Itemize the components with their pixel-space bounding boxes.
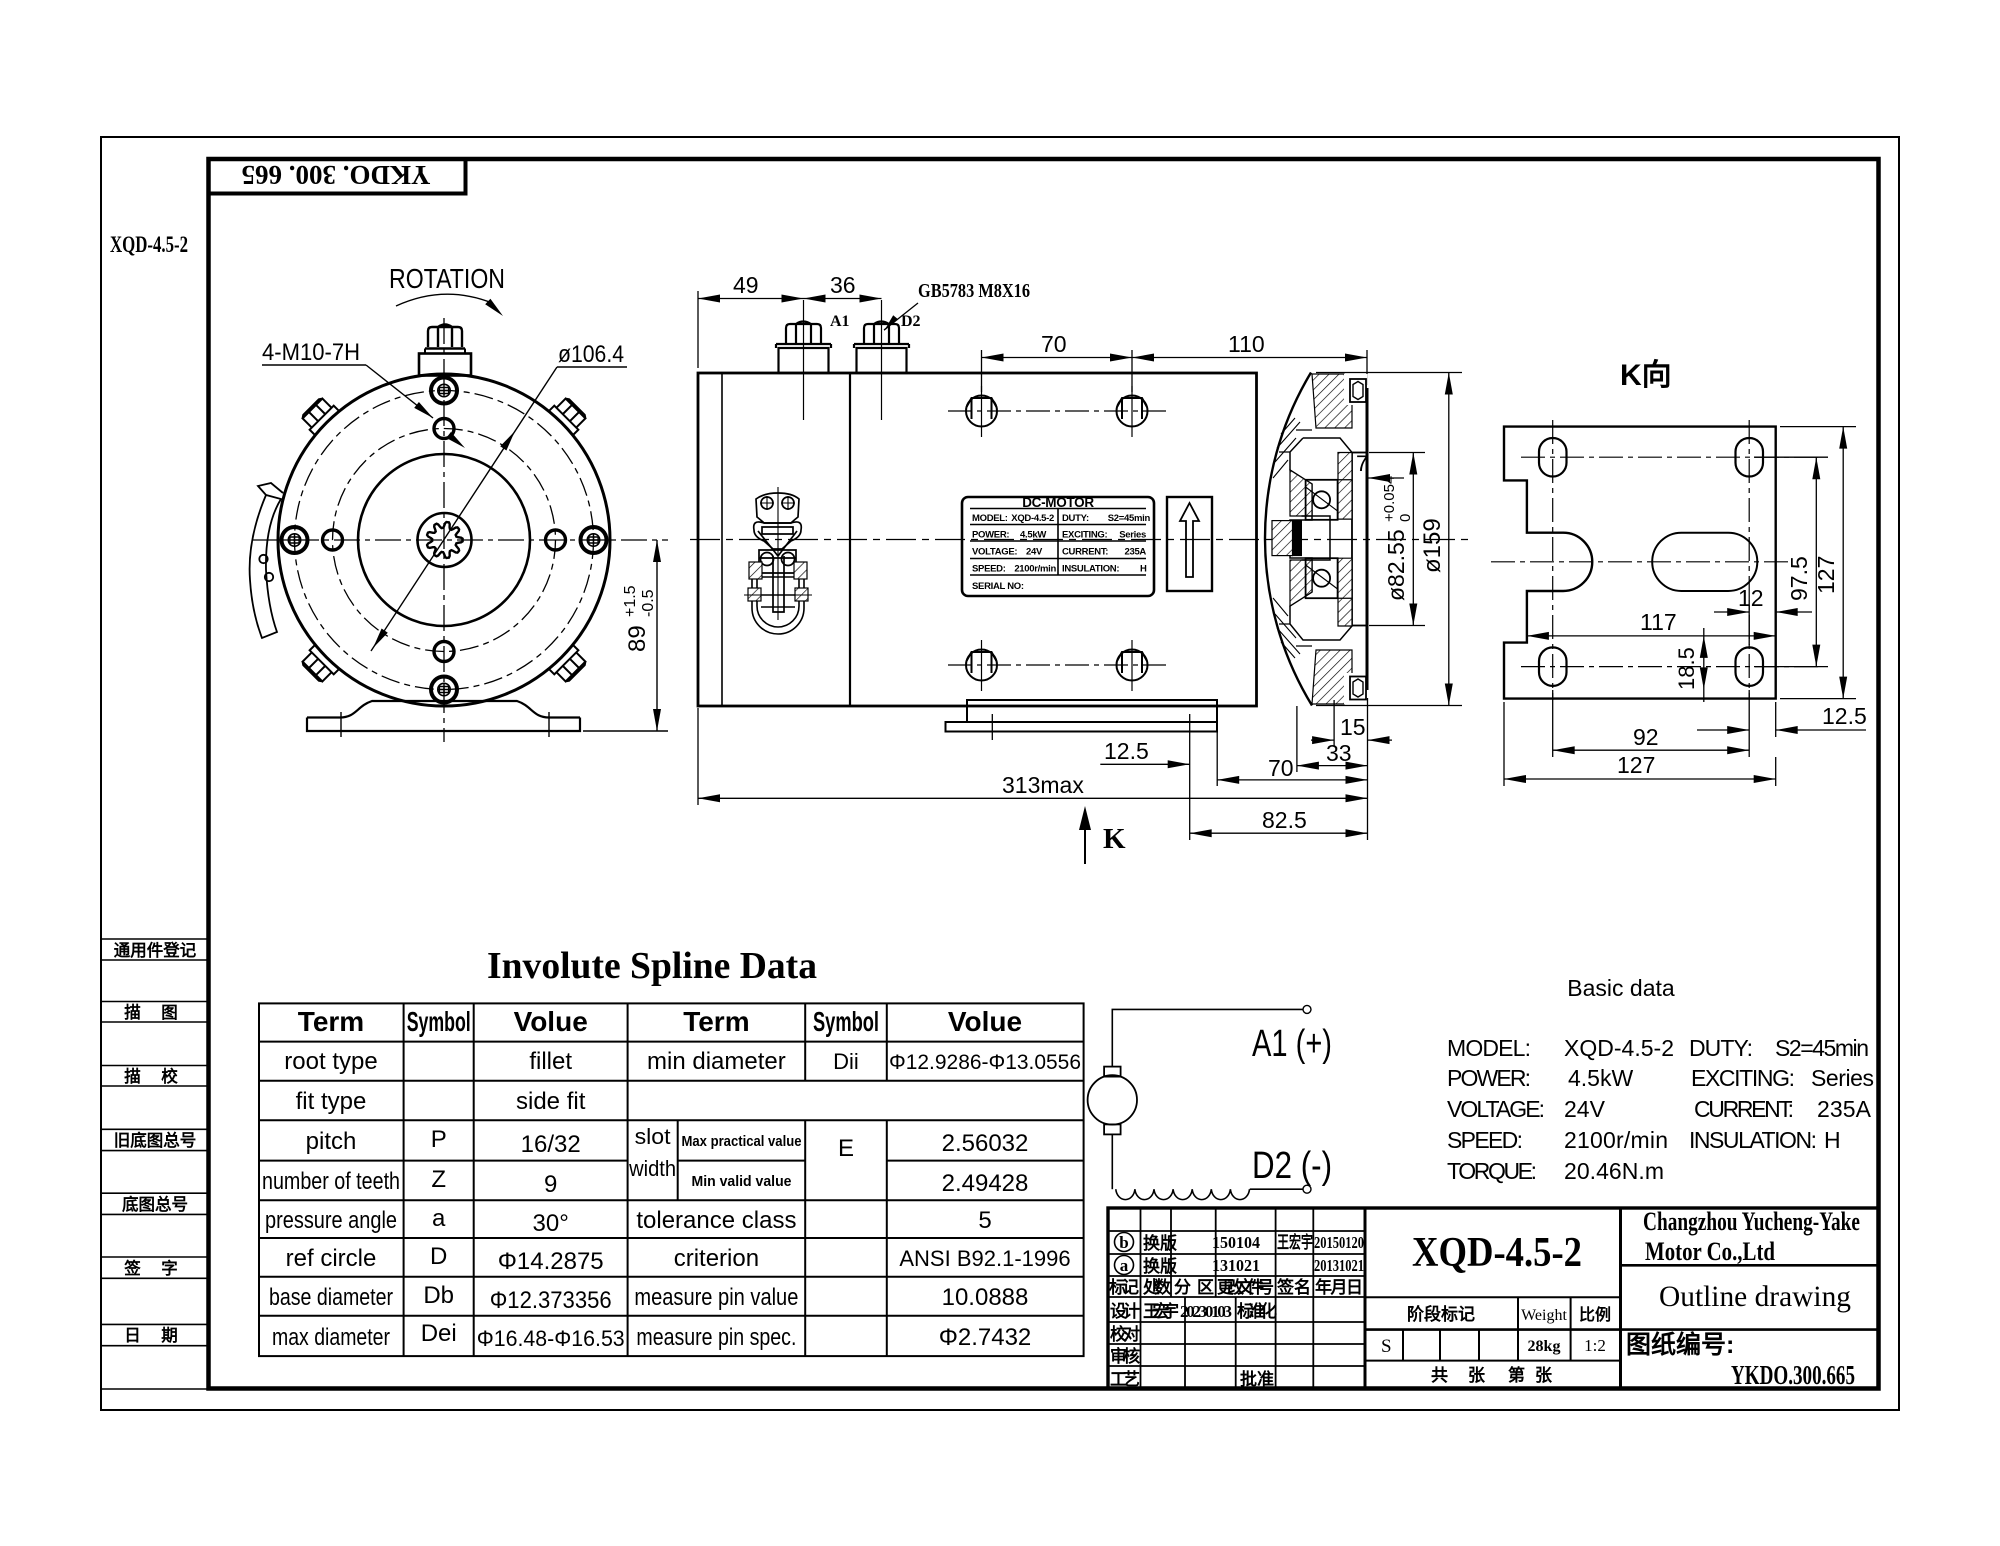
svg-text:Max practical value: Max practical value — [682, 1134, 802, 1150]
svg-text:Series: Series — [1811, 1065, 1874, 1091]
svg-text:张: 张 — [1535, 1366, 1553, 1385]
svg-text:ROTATION: ROTATION — [389, 263, 505, 294]
svg-text:K: K — [1103, 823, 1126, 855]
svg-text:描 校: 描 校 — [124, 1066, 186, 1086]
svg-text:7: 7 — [1356, 451, 1368, 476]
svg-text:Outline drawing: Outline drawing — [1659, 1280, 1851, 1313]
svg-text:2.56032: 2.56032 — [942, 1130, 1029, 1157]
svg-text:base diameter: base diameter — [269, 1284, 393, 1311]
svg-text:ANSI B92.1-1996: ANSI B92.1-1996 — [899, 1246, 1070, 1271]
svg-text:ref circle: ref circle — [286, 1245, 377, 1272]
svg-text:图纸编号:: 图纸编号: — [1626, 1330, 1734, 1359]
svg-text:旧底图总号: 旧底图总号 — [114, 1130, 197, 1150]
svg-text:5: 5 — [978, 1207, 991, 1234]
svg-text:pitch: pitch — [306, 1128, 357, 1155]
svg-text:20150120: 20150120 — [1314, 1233, 1364, 1252]
svg-text:POWER:: POWER: — [972, 530, 1009, 541]
svg-text:校 对: 校 对 — [1110, 1324, 1140, 1344]
svg-text:通用件登记: 通用件登记 — [114, 940, 197, 960]
svg-text:1:2: 1:2 — [1584, 1336, 1606, 1355]
svg-text:33: 33 — [1326, 740, 1352, 766]
svg-text:Volue: Volue — [948, 1006, 1022, 1037]
svg-text:工 艺: 工 艺 — [1110, 1369, 1140, 1389]
svg-text:YKDO. 300. 665: YKDO. 300. 665 — [242, 160, 431, 190]
svg-text:D2 (-): D2 (-) — [1252, 1145, 1332, 1187]
svg-text:VOLTAGE:: VOLTAGE: — [1447, 1096, 1545, 1122]
svg-text:number of teeth: number of teeth — [262, 1168, 400, 1195]
svg-text:235A: 235A — [1124, 547, 1146, 558]
svg-text:DUTY:: DUTY: — [1689, 1035, 1753, 1061]
svg-text:12.5: 12.5 — [1822, 703, 1867, 729]
svg-text:标 记: 标 记 — [1109, 1277, 1139, 1297]
svg-text:年 月 日: 年 月 日 — [1315, 1277, 1363, 1297]
svg-text:K向: K向 — [1620, 359, 1672, 392]
svg-text:Db: Db — [423, 1282, 454, 1309]
svg-text:measure pin value: measure pin value — [634, 1284, 798, 1311]
svg-text:A1 (+): A1 (+) — [1252, 1023, 1332, 1065]
svg-text:比例: 比例 — [1579, 1305, 1611, 1324]
svg-text:30°: 30° — [533, 1210, 569, 1237]
svg-text:第: 第 — [1508, 1365, 1525, 1385]
svg-text:EXCITING:: EXCITING: — [1062, 530, 1107, 541]
svg-text:ø82.55: ø82.55 — [1383, 529, 1409, 601]
svg-text:A1: A1 — [830, 313, 850, 330]
svg-text:Involute Spline Data: Involute Spline Data — [487, 945, 817, 987]
svg-text:D2: D2 — [901, 313, 921, 330]
svg-text:审 核: 审 核 — [1110, 1346, 1140, 1366]
svg-text:GB5783 M8X16: GB5783 M8X16 — [918, 280, 1030, 302]
svg-text:Dii: Dii — [833, 1049, 859, 1074]
svg-text:SERIAL NO:: SERIAL NO: — [972, 581, 1024, 592]
svg-text:slot: slot — [635, 1124, 671, 1149]
svg-text:18.5: 18.5 — [1674, 647, 1699, 690]
svg-text:MODEL:: MODEL: — [1447, 1035, 1531, 1061]
svg-text:measure pin spec.: measure pin spec. — [636, 1324, 796, 1351]
svg-text:max diameter: max diameter — [272, 1324, 390, 1351]
svg-text:ø159: ø159 — [1419, 518, 1446, 573]
svg-text:XQD-4.5-2: XQD-4.5-2 — [1412, 1230, 1582, 1276]
svg-text:VOLTAGE:: VOLTAGE: — [972, 547, 1017, 558]
svg-text:fit type: fit type — [296, 1088, 367, 1115]
svg-text:Φ16.48-Φ16.53: Φ16.48-Φ16.53 — [477, 1326, 625, 1351]
svg-text:CURRENT:: CURRENT: — [1062, 547, 1108, 558]
svg-text:9: 9 — [544, 1171, 557, 1198]
svg-text:12: 12 — [1738, 585, 1764, 611]
svg-text:36: 36 — [830, 272, 856, 298]
svg-text:P: P — [431, 1126, 447, 1153]
svg-text:王宏宇: 王宏宇 — [1277, 1232, 1313, 1252]
svg-text:E: E — [838, 1135, 854, 1162]
svg-text:10.0888: 10.0888 — [942, 1284, 1029, 1311]
svg-text:16/32: 16/32 — [521, 1131, 581, 1158]
svg-text:INSULATION:: INSULATION: — [1062, 564, 1119, 575]
svg-text:2100r/min: 2100r/min — [1014, 564, 1056, 575]
svg-text:Term: Term — [298, 1006, 364, 1037]
svg-text:pressure angle: pressure angle — [265, 1207, 397, 1234]
svg-text:20131021: 20131021 — [1314, 1256, 1364, 1275]
svg-text:20230103: 20230103 — [1180, 1302, 1232, 1321]
svg-text:S2=45min: S2=45min — [1775, 1035, 1869, 1061]
svg-text:王宏宇: 王宏宇 — [1143, 1301, 1179, 1321]
svg-text:width: width — [628, 1156, 676, 1181]
svg-text:97.5: 97.5 — [1786, 556, 1812, 601]
svg-text:110: 110 — [1228, 331, 1265, 357]
svg-text:4.5kW: 4.5kW — [1568, 1065, 1633, 1091]
svg-text:criterion: criterion — [674, 1245, 759, 1272]
svg-text:+1.5: +1.5 — [622, 585, 639, 617]
svg-text:117: 117 — [1640, 609, 1677, 635]
svg-text:H: H — [1824, 1127, 1841, 1153]
svg-text:150104: 150104 — [1212, 1233, 1260, 1252]
svg-text:-0.5: -0.5 — [640, 589, 657, 617]
svg-text:4-M10-7H: 4-M10-7H — [262, 339, 360, 366]
svg-text:2.49428: 2.49428 — [942, 1170, 1029, 1197]
svg-text:Min valid value: Min valid value — [692, 1174, 792, 1190]
svg-text:24V: 24V — [1564, 1096, 1606, 1122]
svg-text:描 图: 描 图 — [124, 1002, 186, 1022]
svg-text:Dei: Dei — [421, 1320, 457, 1347]
svg-text:0: 0 — [1397, 514, 1414, 522]
svg-text:min diameter: min diameter — [647, 1048, 786, 1075]
svg-text:Z: Z — [431, 1166, 446, 1193]
svg-text:Series: Series — [1119, 530, 1146, 541]
svg-text:EXCITING:: EXCITING: — [1691, 1065, 1795, 1091]
svg-text:阶段标记: 阶段标记 — [1407, 1304, 1475, 1324]
svg-text:D: D — [430, 1243, 447, 1270]
svg-text:b: b — [1119, 1233, 1128, 1252]
svg-text:131021: 131021 — [1212, 1256, 1260, 1275]
svg-text:Φ12.373356: Φ12.373356 — [490, 1287, 612, 1314]
svg-text:换版: 换版 — [1143, 1233, 1177, 1253]
svg-text:Motor Co.,Ltd: Motor Co.,Ltd — [1645, 1237, 1775, 1266]
svg-text:Φ2.7432: Φ2.7432 — [939, 1324, 1032, 1351]
svg-text:28kg: 28kg — [1528, 1338, 1561, 1355]
svg-text:INSULATION:: INSULATION: — [1689, 1127, 1817, 1153]
svg-text:82.5: 82.5 — [1262, 807, 1307, 833]
svg-text:MODEL:: MODEL: — [972, 513, 1008, 524]
svg-text:Φ14.2875: Φ14.2875 — [498, 1248, 604, 1275]
svg-text:S2=45min: S2=45min — [1108, 513, 1151, 524]
svg-text:批 准: 批 准 — [1240, 1369, 1274, 1389]
svg-text:4.5kW: 4.5kW — [1020, 530, 1046, 541]
svg-text:更改文件号: 更改文件号 — [1217, 1277, 1274, 1297]
svg-text:Symbol: Symbol — [813, 1006, 879, 1037]
svg-text:张: 张 — [1468, 1366, 1486, 1385]
svg-text:Φ12.9286-Φ13.0556: Φ12.9286-Φ13.0556 — [889, 1051, 1081, 1074]
svg-text:92: 92 — [1633, 724, 1659, 750]
svg-text:15: 15 — [1340, 714, 1366, 740]
svg-text:换版: 换版 — [1143, 1256, 1177, 1276]
svg-text:YKDO.300.665: YKDO.300.665 — [1731, 1360, 1855, 1390]
svg-text:ø106.4: ø106.4 — [558, 341, 624, 368]
svg-text:side fit: side fit — [516, 1088, 586, 1115]
svg-text:Term: Term — [683, 1006, 749, 1037]
svg-text:tolerance class: tolerance class — [636, 1207, 796, 1234]
svg-text:Basic data: Basic data — [1567, 975, 1675, 1001]
svg-text:标准化: 标准化 — [1237, 1301, 1277, 1321]
svg-text:Symbol: Symbol — [407, 1006, 471, 1037]
svg-text:H: H — [1140, 564, 1147, 575]
svg-text:127: 127 — [1813, 556, 1839, 594]
svg-text:a: a — [432, 1205, 446, 1232]
svg-text:SPEED:: SPEED: — [1447, 1127, 1523, 1153]
svg-text:89: 89 — [624, 625, 651, 652]
svg-text:XQD-4.5-2: XQD-4.5-2 — [1564, 1035, 1674, 1061]
svg-text:CURRENT:: CURRENT: — [1694, 1096, 1794, 1122]
svg-text:313max: 313max — [1002, 772, 1084, 798]
svg-text:TORQUE:: TORQUE: — [1447, 1158, 1537, 1184]
svg-text:共: 共 — [1431, 1366, 1448, 1385]
svg-text:底图总号: 底图总号 — [122, 1194, 188, 1214]
svg-text:POWER:: POWER: — [1447, 1065, 1531, 1091]
svg-text:2100r/min: 2100r/min — [1564, 1127, 1668, 1153]
svg-text:XQD-4.5-2: XQD-4.5-2 — [1011, 513, 1054, 524]
svg-text:12.5: 12.5 — [1104, 738, 1149, 764]
svg-text:Weight: Weight — [1521, 1307, 1567, 1324]
svg-text:24V: 24V — [1026, 547, 1043, 558]
svg-text:DC-MOTOR: DC-MOTOR — [1022, 495, 1094, 510]
svg-text:分 区: 分 区 — [1174, 1278, 1214, 1297]
svg-text:Volue: Volue — [514, 1006, 588, 1037]
svg-text:127: 127 — [1617, 752, 1655, 778]
svg-text:处 数: 处 数 — [1142, 1277, 1172, 1297]
svg-text:a: a — [1120, 1256, 1129, 1275]
svg-text:日 期: 日 期 — [124, 1326, 186, 1345]
svg-text:fillet: fillet — [529, 1048, 572, 1075]
svg-text:SPEED:: SPEED: — [972, 564, 1006, 575]
svg-text:Changzhou Yucheng-Yake: Changzhou Yucheng-Yake — [1643, 1207, 1860, 1236]
svg-text:签 字: 签 字 — [123, 1258, 186, 1278]
svg-text:70: 70 — [1041, 331, 1067, 357]
svg-text:XQD-4.5-2: XQD-4.5-2 — [110, 232, 188, 257]
svg-text:DUTY:: DUTY: — [1062, 513, 1089, 524]
svg-text:49: 49 — [733, 272, 759, 298]
svg-text:20.46N.m: 20.46N.m — [1564, 1158, 1664, 1184]
svg-text:70: 70 — [1268, 755, 1294, 781]
svg-text:签 名: 签 名 — [1276, 1277, 1311, 1297]
svg-text:+0.054: +0.054 — [1381, 476, 1398, 522]
svg-text:root type: root type — [284, 1048, 377, 1075]
svg-text:设 计: 设 计 — [1110, 1301, 1140, 1321]
svg-text:S: S — [1381, 1336, 1392, 1357]
svg-text:235A: 235A — [1817, 1096, 1872, 1122]
